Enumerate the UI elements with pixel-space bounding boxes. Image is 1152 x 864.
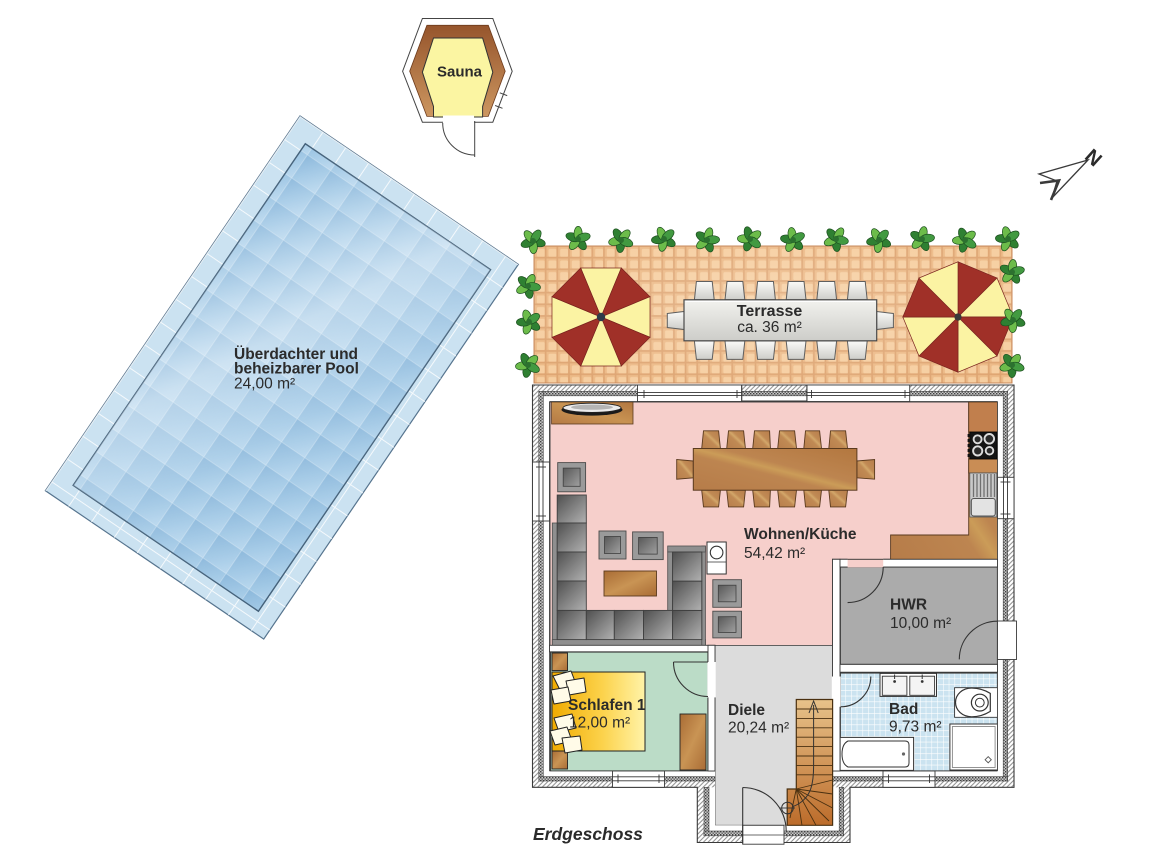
svg-text:Sauna: Sauna: [437, 64, 483, 81]
svg-text:Erdgeschoss: Erdgeschoss: [533, 824, 643, 844]
svg-text:N: N: [1080, 145, 1105, 171]
svg-text:9,73 m²: 9,73 m²: [889, 719, 942, 736]
svg-text:ca. 36 m²: ca. 36 m²: [737, 319, 802, 336]
svg-text:Wohnen/Küche: Wohnen/Küche: [744, 526, 857, 543]
svg-text:Schlafen 1: Schlafen 1: [568, 697, 646, 714]
svg-text:10,00 m²: 10,00 m²: [890, 615, 951, 632]
svg-text:Bad: Bad: [889, 701, 918, 718]
svg-text:20,24 m²: 20,24 m²: [728, 720, 789, 737]
svg-text:Terrasse: Terrasse: [737, 303, 803, 320]
svg-text:Diele: Diele: [728, 702, 765, 719]
svg-text:24,00 m²: 24,00 m²: [234, 376, 295, 393]
svg-text:12,00 m²: 12,00 m²: [569, 715, 630, 732]
svg-text:54,42 m²: 54,42 m²: [744, 545, 805, 562]
svg-text:HWR: HWR: [890, 597, 927, 614]
